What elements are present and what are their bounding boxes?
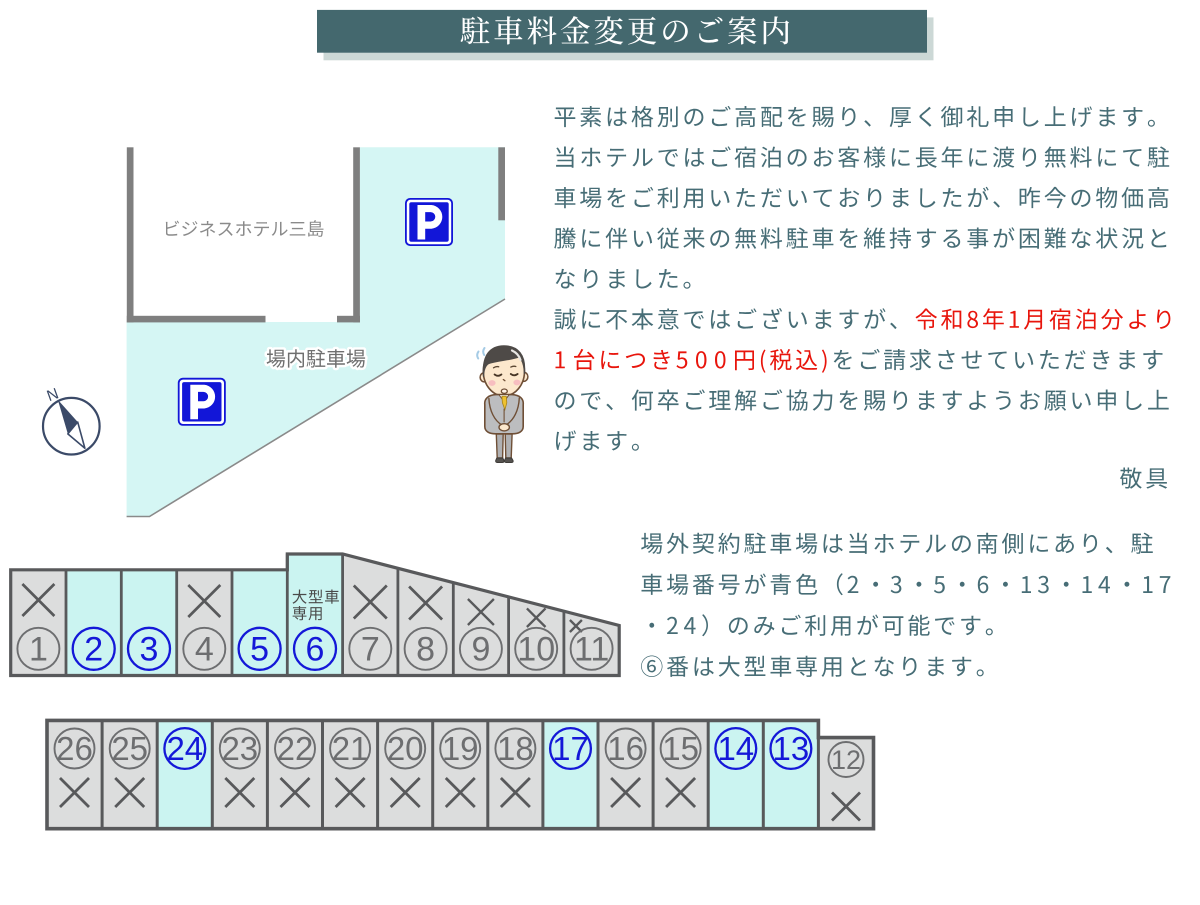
- svg-text:23: 23: [221, 730, 258, 767]
- svg-text:5: 5: [250, 631, 269, 669]
- svg-text:N: N: [45, 385, 61, 405]
- svg-text:11: 11: [574, 631, 609, 669]
- svg-text:24: 24: [166, 730, 203, 767]
- svg-text:19: 19: [442, 730, 479, 767]
- svg-text:2: 2: [84, 631, 103, 669]
- svg-text:25: 25: [111, 730, 148, 767]
- svg-text:26: 26: [56, 730, 93, 767]
- svg-text:13: 13: [773, 730, 810, 767]
- svg-text:6: 6: [306, 631, 325, 669]
- svg-text:10: 10: [517, 631, 555, 669]
- svg-text:16: 16: [607, 730, 644, 767]
- svg-text:17: 17: [552, 730, 589, 767]
- svg-text:1: 1: [29, 631, 48, 669]
- svg-text:22: 22: [277, 730, 314, 767]
- svg-text:12: 12: [831, 745, 861, 775]
- svg-text:20: 20: [387, 730, 424, 767]
- svg-text:7: 7: [361, 631, 380, 669]
- svg-text:14: 14: [717, 730, 754, 767]
- svg-text:18: 18: [497, 730, 534, 767]
- svg-text:3: 3: [140, 631, 159, 669]
- svg-text:15: 15: [662, 730, 699, 767]
- svg-text:21: 21: [332, 730, 369, 767]
- svg-text:4: 4: [195, 631, 214, 669]
- svg-text:9: 9: [471, 631, 490, 669]
- svg-text:8: 8: [416, 631, 435, 669]
